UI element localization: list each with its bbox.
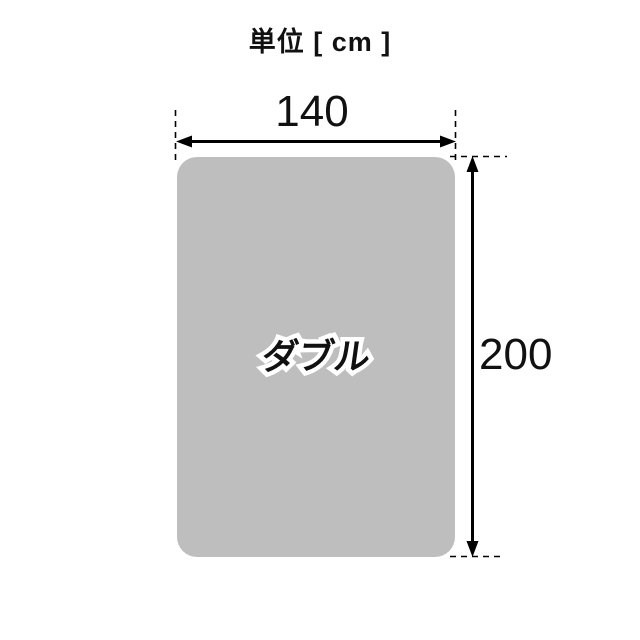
height-value: 200 — [479, 333, 552, 377]
size-name-text: ダブル — [259, 336, 373, 377]
height-dimension-arrow — [467, 156, 479, 557]
width-dimension-arrow — [176, 136, 456, 148]
size-diagram: 単位 [ cm ] ダブル ダブル 140 200 — [0, 0, 640, 640]
product-rectangle: ダブル ダブル — [177, 157, 455, 557]
width-value: 140 — [252, 90, 372, 134]
size-name-label: ダブル ダブル — [259, 339, 372, 375]
unit-label: 単位 [ cm ] — [0, 20, 640, 59]
